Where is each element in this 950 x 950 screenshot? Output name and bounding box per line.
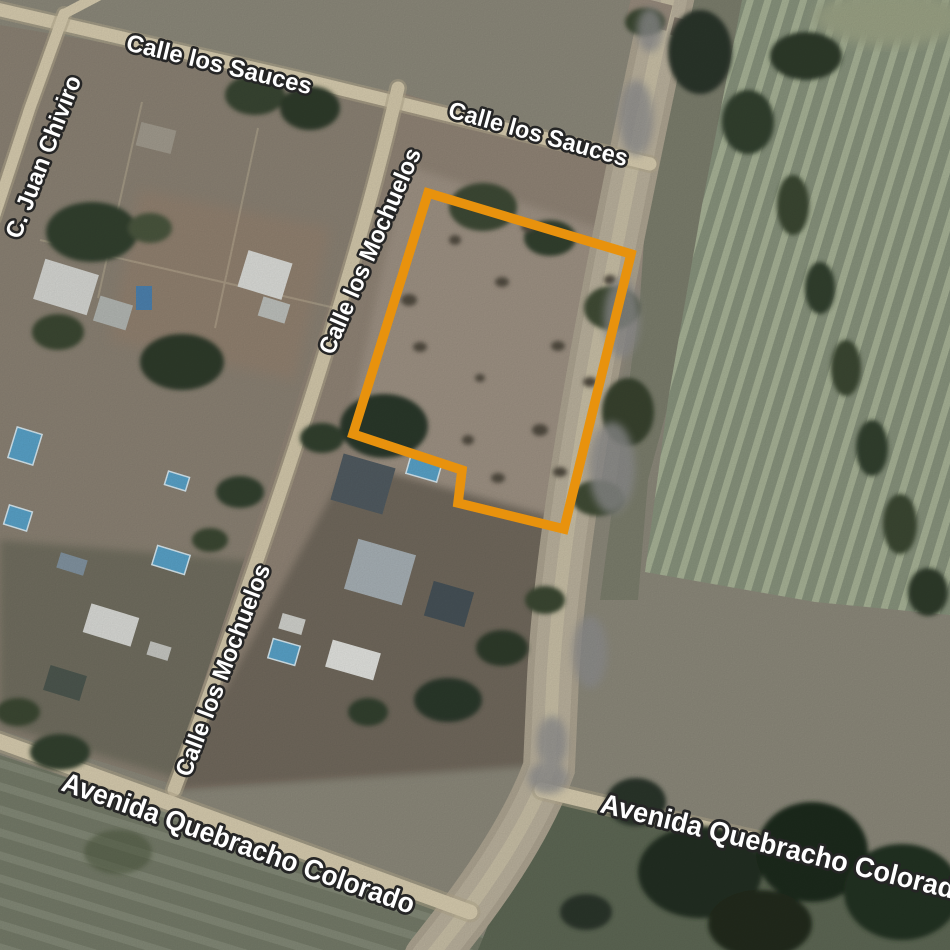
satellite-map-canvas[interactable]: Calle los Sauces Calle los Sauces C. Jua… [0, 0, 950, 950]
satellite-scene: Calle los Sauces Calle los Sauces C. Jua… [0, 0, 950, 950]
